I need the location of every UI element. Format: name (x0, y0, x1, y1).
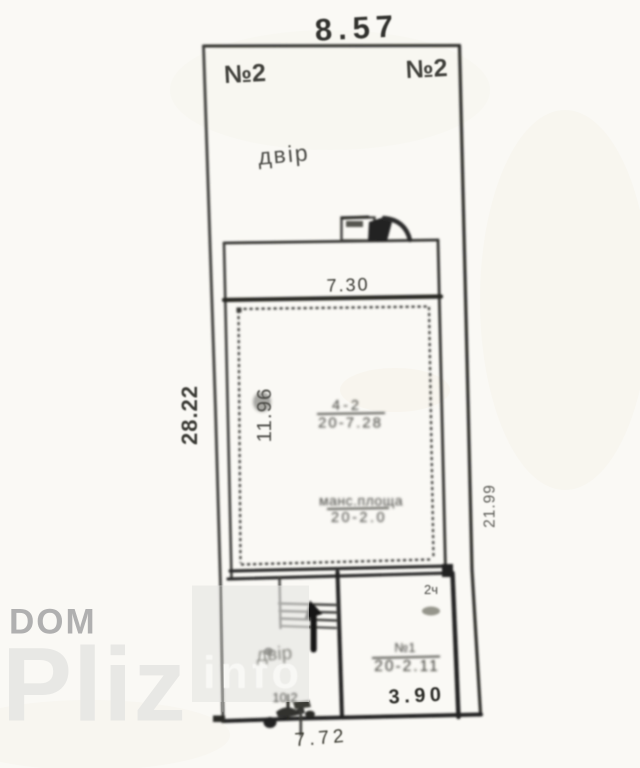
svg-text:20-7.28: 20-7.28 (318, 415, 383, 432)
svg-text:21.99: 21.99 (482, 484, 499, 528)
svg-text:Pliz: Pliz (2, 627, 187, 744)
svg-text:двір: двір (256, 643, 293, 666)
svg-text:20-2.0: 20-2.0 (331, 510, 387, 526)
svg-text:№2: №2 (223, 59, 266, 89)
svg-text:№2: №2 (405, 54, 448, 84)
svg-text:4-2: 4-2 (332, 398, 362, 414)
svg-text:3.90: 3.90 (388, 684, 446, 709)
svg-text:28.22: 28.22 (177, 385, 202, 445)
svg-text:10.2: 10.2 (272, 690, 297, 705)
svg-text:двір: двір (257, 139, 311, 169)
svg-text:8.57: 8.57 (314, 8, 400, 47)
svg-text:2ч: 2ч (424, 582, 438, 597)
svg-text:20-2.11: 20-2.11 (374, 658, 439, 675)
svg-text:манс.площа: манс.площа (319, 493, 403, 509)
svg-text:7.30: 7.30 (326, 274, 370, 295)
svg-text:№1: №1 (394, 640, 415, 655)
svg-text:11.96: 11.96 (253, 388, 276, 443)
